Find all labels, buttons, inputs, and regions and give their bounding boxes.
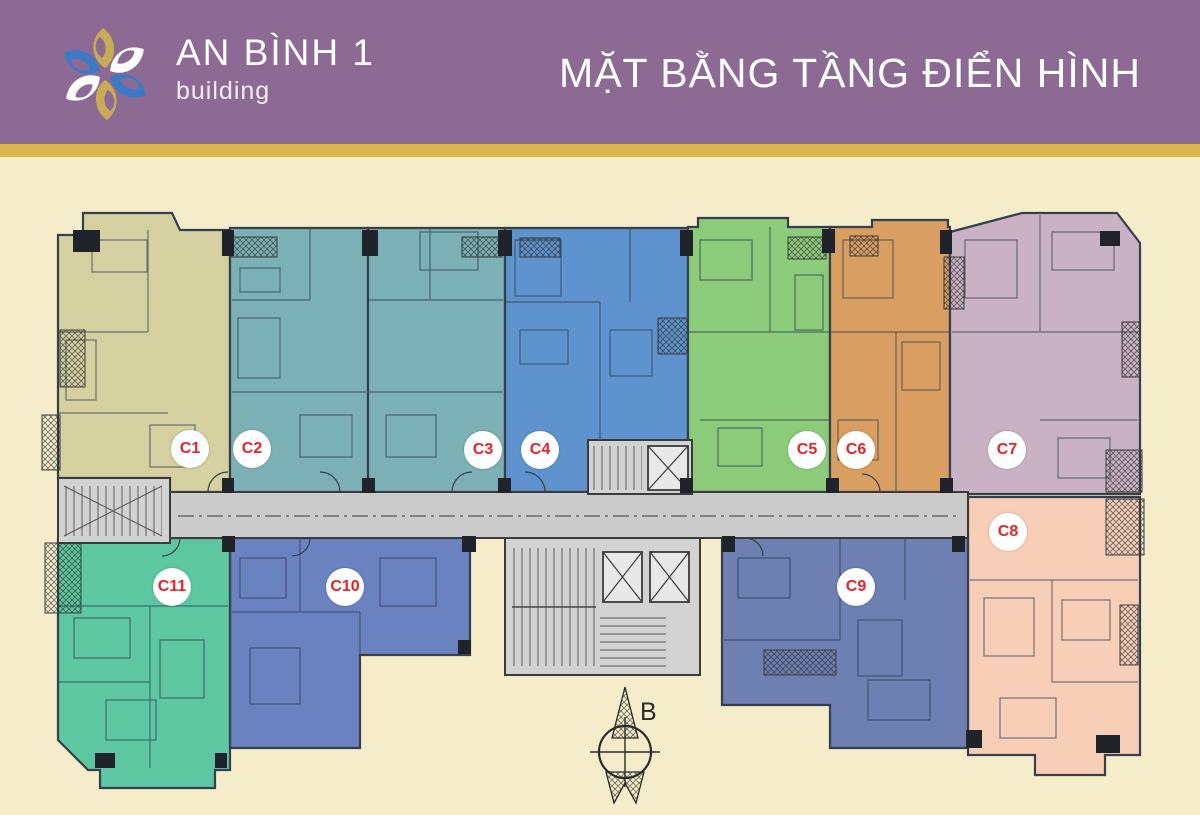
unit-label-c2: C2 (233, 430, 271, 468)
core-stair2-treads (600, 614, 666, 668)
unit-label-c3: C3 (464, 431, 502, 469)
unit-label-c11: C11 (153, 568, 191, 606)
upper-core-stair (592, 446, 642, 490)
page: B C1 C2 C3 C4 C5 C6 C7 C8 C9 C10 C11 AN … (0, 0, 1200, 815)
header-band: AN BÌNH 1 building MẶT BẰNG TẦNG ĐIỂN HÌ… (0, 0, 1200, 144)
compass-label: B (640, 698, 657, 726)
unit-c9-area (722, 536, 968, 748)
compass-north-icon: B (590, 687, 660, 803)
unit-label-c6: C6 (837, 431, 875, 469)
unit-label-c7: C7 (988, 431, 1026, 469)
logo-text: AN BÌNH 1 building (176, 33, 375, 106)
unit-label-c5: C5 (788, 431, 826, 469)
gold-divider (0, 144, 1200, 157)
unit-label-c10: C10 (326, 568, 364, 606)
unit-label-c4: C4 (521, 431, 559, 469)
building-name: AN BÌNH 1 (176, 33, 375, 74)
unit-label-c1: C1 (171, 430, 209, 468)
unit-label-c8: C8 (989, 513, 1027, 551)
corridor (170, 492, 968, 538)
anbinh-logo-icon (30, 0, 180, 144)
building-subtitle: building (176, 77, 375, 106)
unit-label-c9: C9 (837, 568, 875, 606)
page-title: MẶT BẰNG TẦNG ĐIỂN HÌNH (540, 50, 1160, 97)
